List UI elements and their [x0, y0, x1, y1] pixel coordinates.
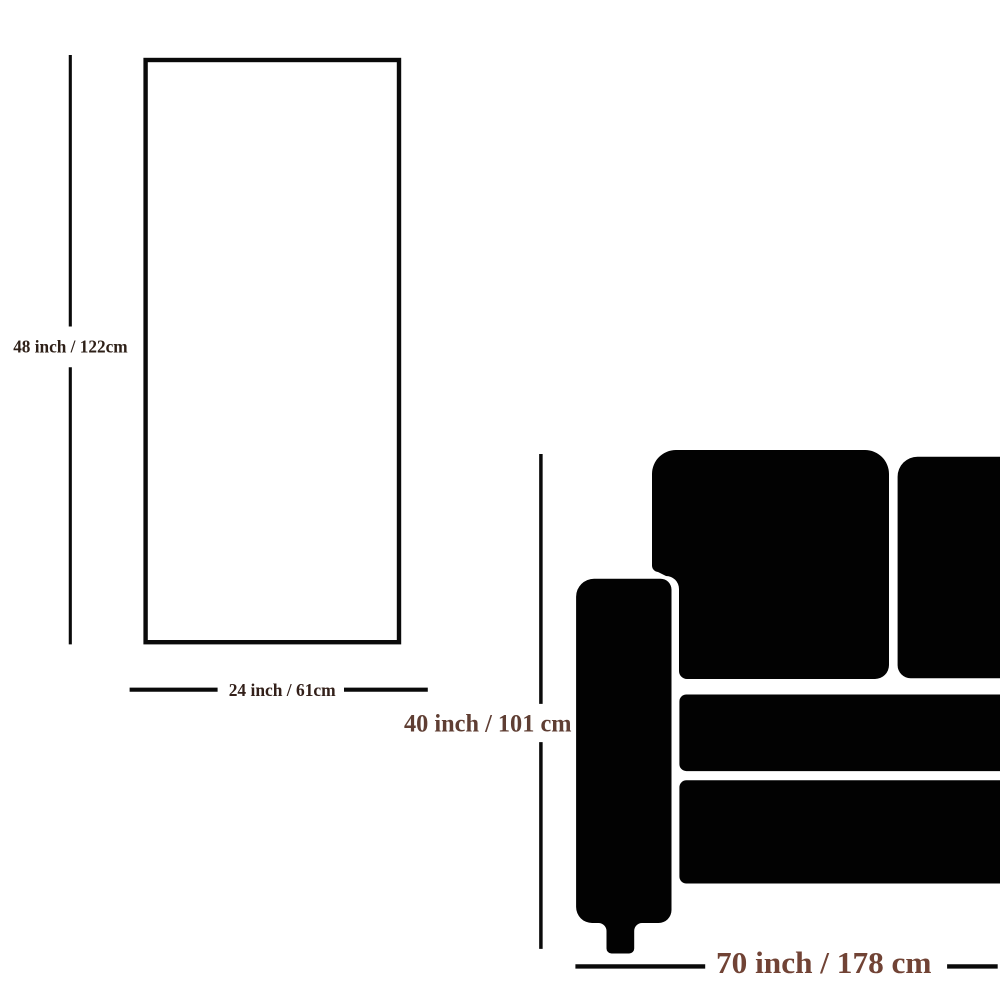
svg-text:24 inch / 61cm: 24 inch / 61cm	[229, 680, 336, 700]
svg-text:40 inch / 101 cm: 40 inch / 101 cm	[404, 711, 572, 738]
svg-text:48 inch / 122cm: 48 inch / 122cm	[13, 337, 128, 357]
svg-text:70 inch / 178 cm: 70 inch / 178 cm	[716, 946, 932, 980]
